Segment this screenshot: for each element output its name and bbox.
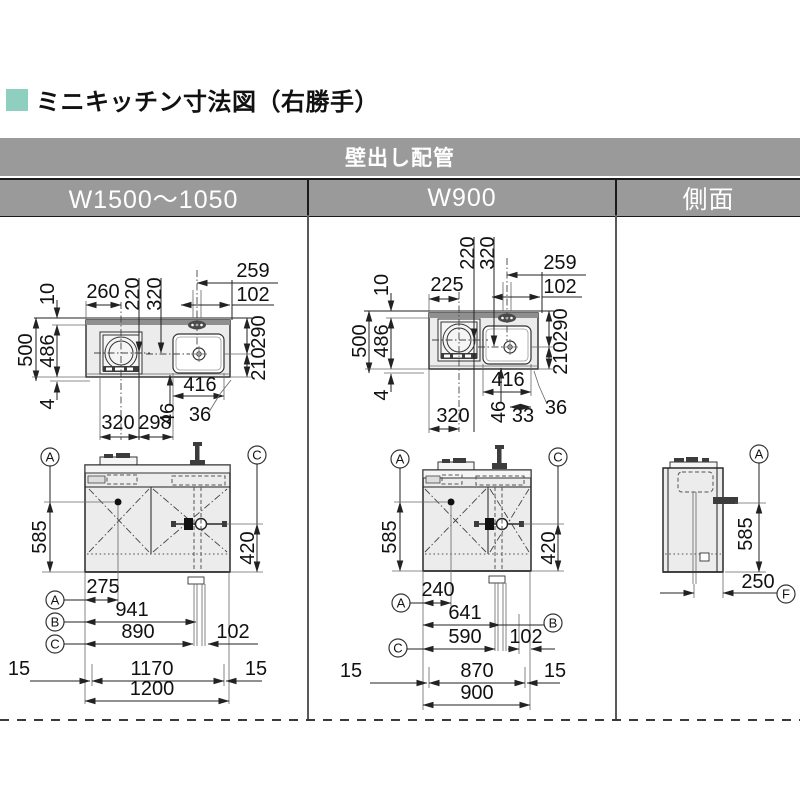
svg-text:36: 36: [189, 404, 211, 426]
column-header-w1500: W1500～1050: [0, 180, 309, 216]
svg-text:36: 36: [545, 397, 567, 419]
svg-text:486: 486: [37, 334, 59, 367]
svg-text:C: C: [553, 450, 562, 465]
svg-text:15: 15: [544, 660, 566, 682]
svg-text:A: A: [51, 593, 60, 608]
svg-text:585: 585: [379, 520, 401, 553]
w900-plan-view: 500 486 10 4 225 220 320: [349, 236, 586, 433]
side-diagram: A 585 250 F: [616, 214, 800, 720]
svg-text:320: 320: [101, 412, 134, 434]
w900-diagram: 500 486 10 4 225 220 320: [308, 214, 616, 720]
svg-text:641: 641: [448, 602, 481, 624]
page-title-row: ミニキッチン寸法図（右勝手）: [6, 82, 379, 117]
svg-text:259: 259: [543, 252, 576, 274]
svg-text:240: 240: [421, 579, 454, 601]
svg-text:A: A: [46, 450, 55, 465]
svg-text:250: 250: [741, 571, 774, 593]
svg-text:585: 585: [29, 520, 51, 553]
svg-text:B: B: [549, 616, 558, 631]
svg-text:C: C: [50, 637, 59, 652]
svg-text:260: 260: [86, 281, 119, 303]
svg-text:10: 10: [371, 274, 393, 296]
svg-text:870: 870: [460, 660, 493, 682]
svg-text:210: 210: [550, 341, 572, 374]
column-header-side: 側面: [617, 180, 800, 216]
svg-text:A: A: [755, 447, 764, 462]
svg-text:275: 275: [86, 576, 119, 598]
column-divider-2: [615, 215, 617, 719]
page-title: ミニキッチン寸法図（右勝手）: [36, 82, 379, 117]
table-column-headers: W1500～1050 W900 側面: [0, 178, 800, 217]
svg-text:4: 4: [371, 389, 393, 400]
w1500-front-view: A 585 C 420: [8, 442, 267, 704]
svg-text:1200: 1200: [130, 678, 175, 700]
svg-text:259: 259: [236, 260, 269, 282]
w900-front-view: A 585 C 420: [340, 445, 567, 710]
bottom-dashed-separator: [0, 719, 800, 721]
svg-text:220: 220: [122, 277, 144, 310]
svg-text:420: 420: [237, 531, 259, 564]
svg-text:F: F: [782, 587, 790, 602]
handle-dot: [448, 499, 455, 506]
svg-text:C: C: [393, 641, 402, 656]
wall-pipe: [713, 497, 738, 504]
svg-text:500: 500: [349, 324, 371, 357]
svg-text:420: 420: [538, 531, 560, 564]
w1500-diagram: 500 486 10 4 260 220 320: [0, 214, 308, 720]
faucet-front: [190, 442, 205, 466]
svg-text:298: 298: [138, 412, 171, 434]
handle-dot: [115, 499, 122, 506]
svg-text:900: 900: [460, 682, 493, 704]
svg-text:B: B: [51, 615, 60, 630]
svg-text:290: 290: [550, 308, 572, 341]
cooktop-front: [438, 458, 474, 471]
svg-text:102: 102: [236, 284, 269, 306]
svg-text:15: 15: [340, 660, 362, 682]
svg-text:225: 225: [430, 274, 463, 296]
column-divider-1: [307, 215, 309, 719]
svg-text:890: 890: [121, 621, 154, 643]
svg-text:416: 416: [183, 374, 216, 396]
svg-text:15: 15: [8, 658, 30, 680]
svg-text:320: 320: [436, 405, 469, 427]
svg-text:320: 320: [477, 236, 499, 269]
svg-text:102: 102: [543, 276, 576, 298]
svg-text:4: 4: [37, 398, 59, 409]
svg-text:33: 33: [512, 405, 534, 427]
accent-square-icon: [6, 89, 28, 111]
svg-text:102: 102: [216, 621, 249, 643]
cooktop-front: [100, 453, 137, 466]
svg-text:C: C: [252, 448, 261, 463]
page: ミニキッチン寸法図（右勝手） 壁出し配管 W1500～1050 W900 側面: [0, 0, 800, 800]
w1500-plan-view: 500 486 10 4 260 220 320: [15, 260, 278, 440]
svg-text:220: 220: [457, 236, 479, 269]
svg-text:590: 590: [448, 626, 481, 648]
svg-text:102: 102: [509, 626, 542, 648]
column-header-w900: W900: [309, 180, 617, 216]
svg-text:416: 416: [491, 369, 524, 391]
svg-text:A: A: [396, 452, 405, 467]
top-header-label: 壁出し配管: [345, 142, 455, 172]
svg-text:290: 290: [248, 315, 270, 348]
svg-text:500: 500: [15, 333, 37, 366]
svg-text:320: 320: [144, 277, 166, 310]
svg-text:486: 486: [371, 324, 393, 357]
svg-text:941: 941: [115, 599, 148, 621]
svg-text:15: 15: [245, 658, 267, 680]
table-top-header: 壁出し配管: [0, 138, 800, 176]
faucet-front: [492, 445, 507, 469]
svg-text:10: 10: [37, 283, 59, 305]
svg-text:585: 585: [735, 517, 757, 550]
svg-text:210: 210: [248, 347, 270, 380]
svg-text:1170: 1170: [130, 658, 173, 680]
svg-text:A: A: [397, 596, 406, 611]
side-view: A 585 250 F: [660, 445, 795, 603]
svg-text:46: 46: [488, 401, 510, 423]
